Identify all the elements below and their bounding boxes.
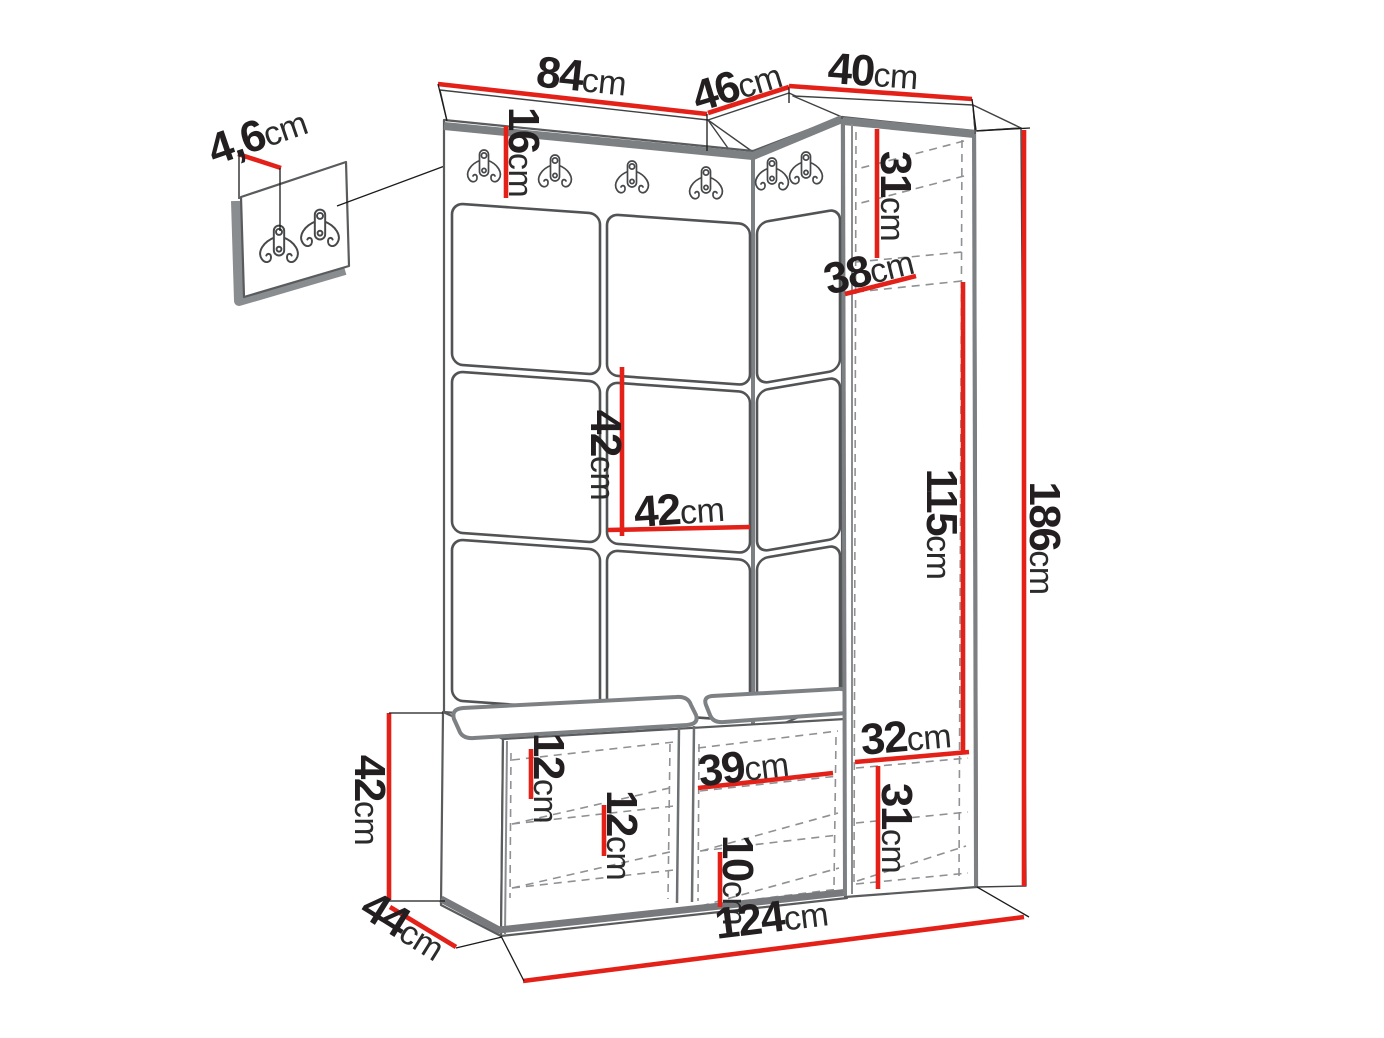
dim-label: 84cm — [534, 47, 629, 105]
furniture-dimension-diagram: 84cm 46cm 40cm 4,6cm 16cm 31cm — [0, 0, 1384, 1038]
dim-label: 4,6cm — [202, 96, 313, 175]
dimension-bench-height: 42cm — [345, 713, 445, 901]
bench-cushion-right — [705, 689, 855, 722]
diagram-canvas: 84cm 46cm 40cm 4,6cm 16cm 31cm — [0, 0, 1384, 1038]
small-hook-panel — [236, 162, 450, 301]
dim-label: 186cm — [1020, 481, 1069, 594]
dim-label: 44cm — [352, 881, 455, 970]
cabinet-left-front-edge — [843, 119, 845, 896]
dim-label: 40cm — [826, 44, 919, 99]
cabinet-right-side-face — [975, 128, 1026, 887]
pointer-line — [337, 164, 450, 206]
cabinet-right-front-edge — [974, 134, 976, 886]
dim-label: 42cm — [345, 755, 394, 845]
cabinet-top-corner — [973, 105, 1021, 131]
